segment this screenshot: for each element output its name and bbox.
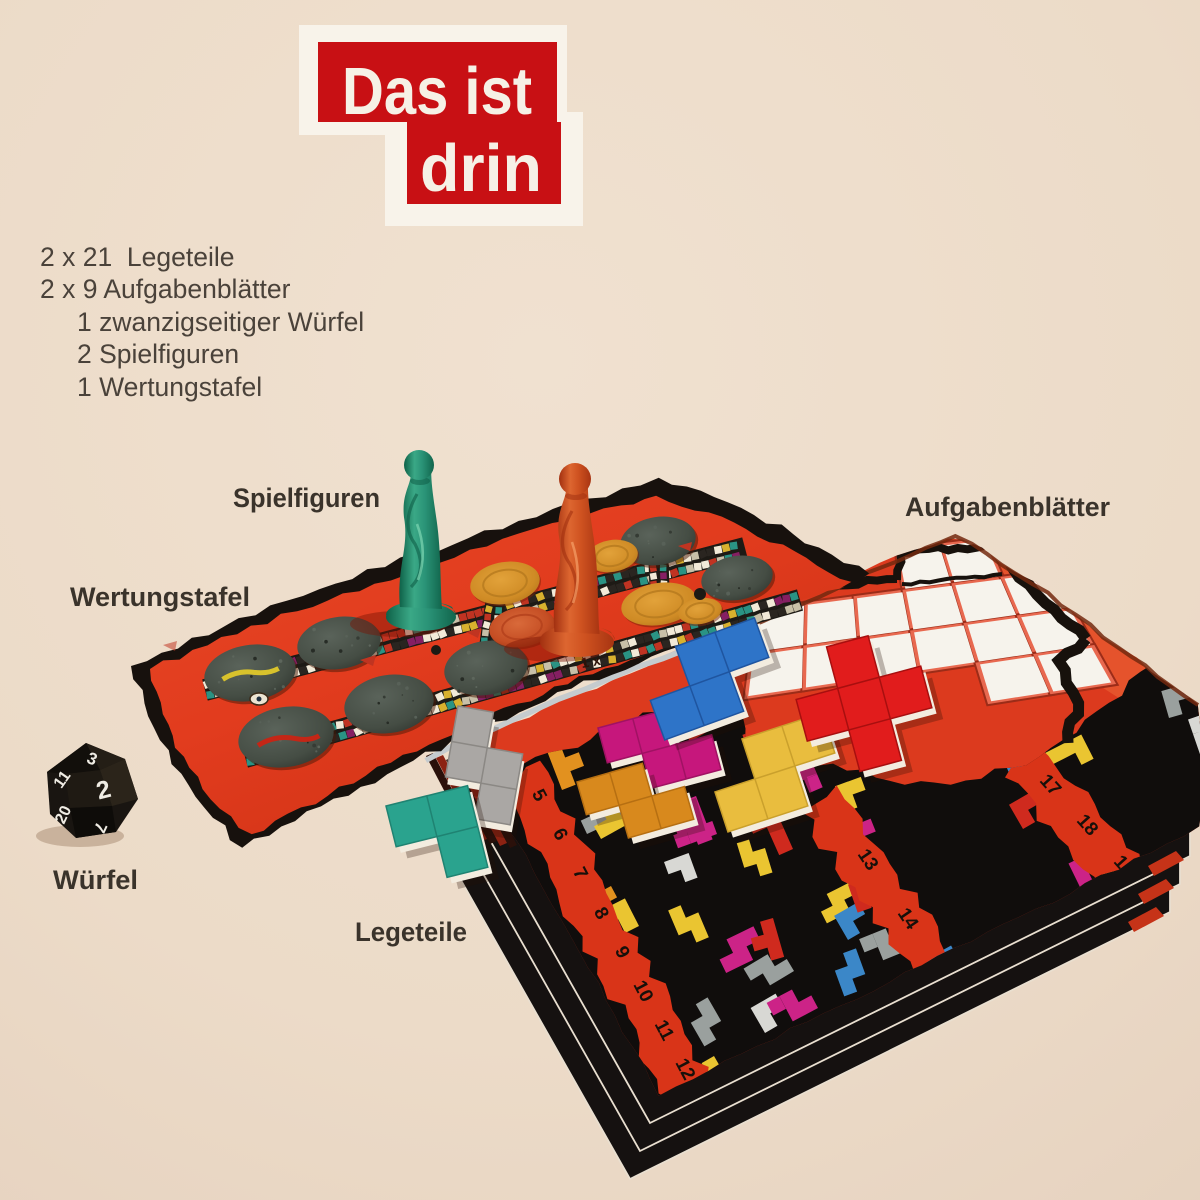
svg-text:1 Wertungstafel: 1 Wertungstafel — [77, 372, 262, 402]
svg-text:Spielfiguren: Spielfiguren — [233, 483, 380, 513]
svg-text:drin: drin — [420, 131, 542, 206]
svg-text:2 x 21 Legeteile: 2 x 21 Legeteile — [40, 242, 234, 272]
svg-text:Würfel: Würfel — [53, 865, 138, 895]
svg-text:Das ist: Das ist — [342, 54, 532, 129]
svg-text:2 Spielfiguren: 2 Spielfiguren — [77, 339, 239, 369]
svg-text:2 x 9 Aufgabenblätter: 2 x 9 Aufgabenblätter — [40, 274, 291, 304]
svg-text:Aufgabenblätter: Aufgabenblätter — [905, 492, 1110, 522]
svg-text:1 zwanzigseitiger Würfel: 1 zwanzigseitiger Würfel — [77, 307, 364, 337]
svg-text:Legeteile: Legeteile — [355, 917, 467, 947]
svg-text:Wertungstafel: Wertungstafel — [70, 582, 250, 612]
